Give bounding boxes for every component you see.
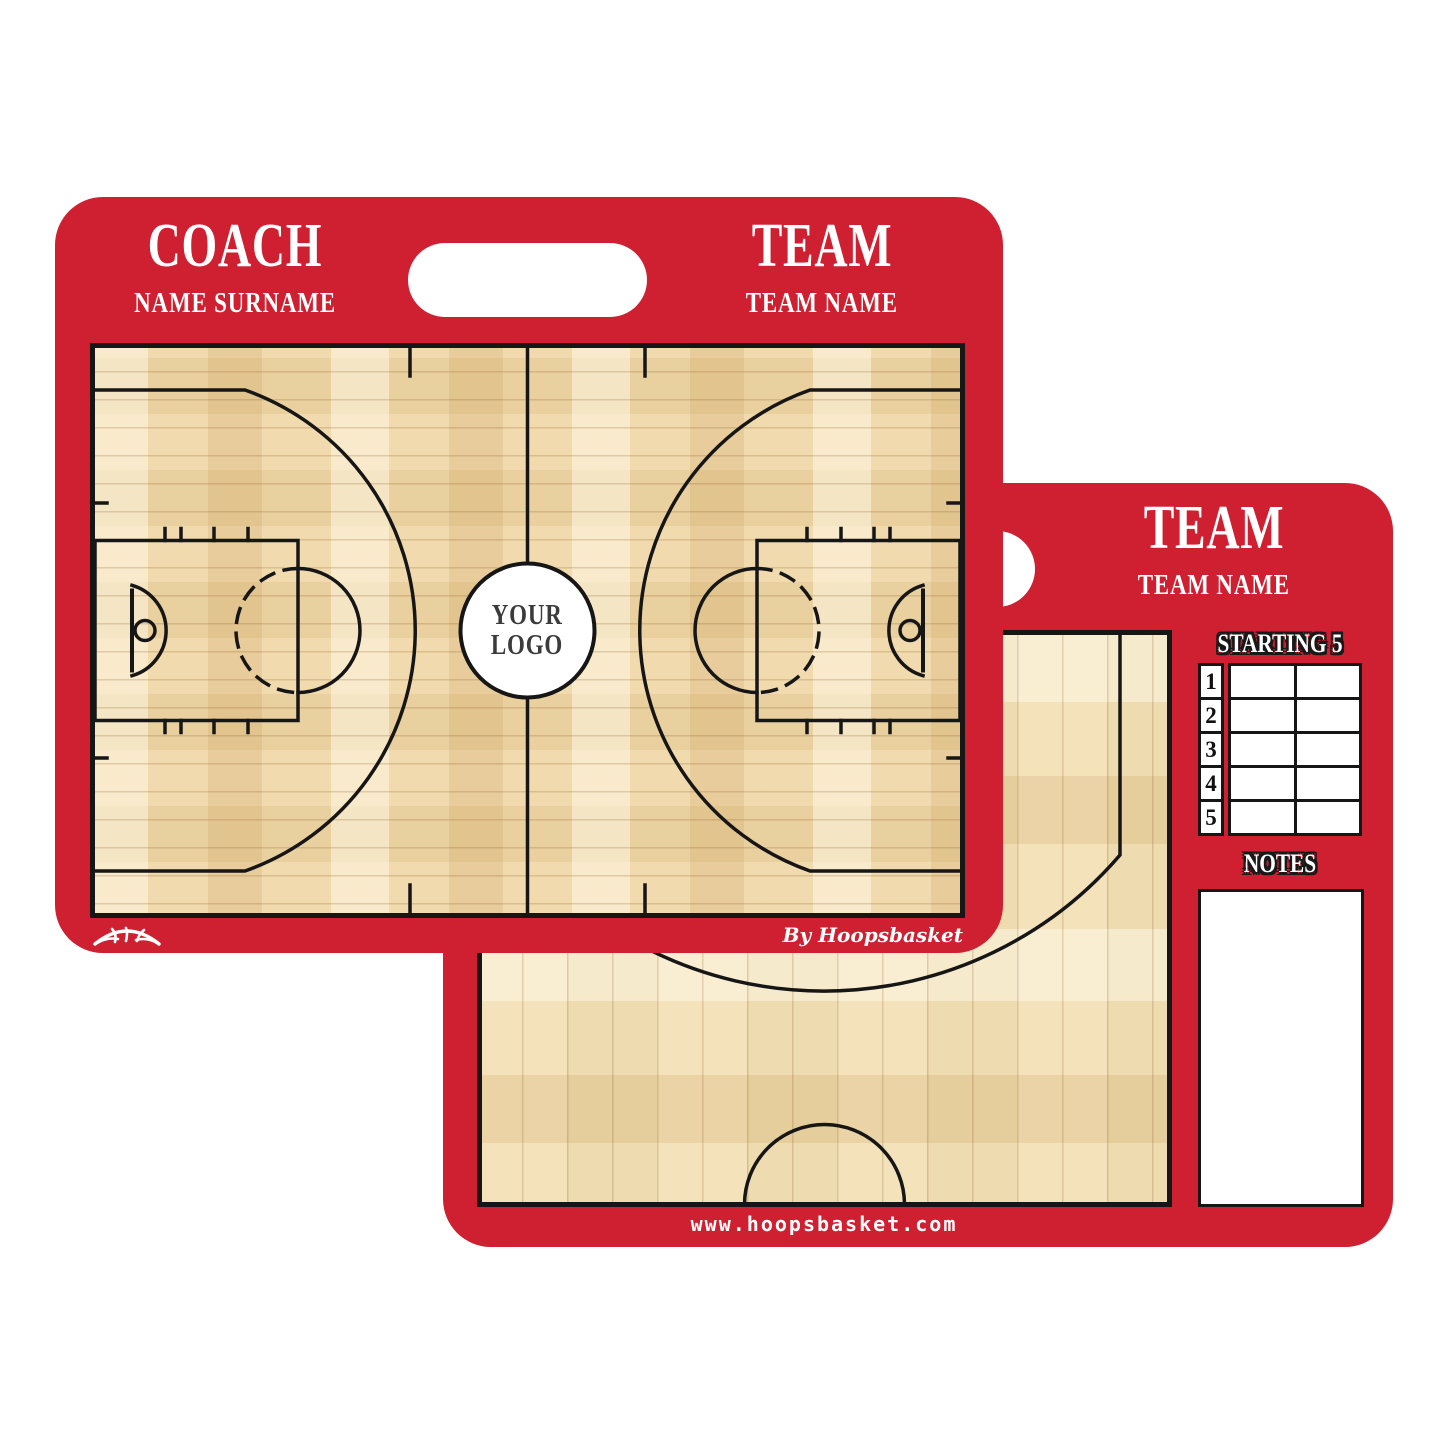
right-half-court-markings — [640, 390, 960, 871]
player-cell — [1231, 768, 1294, 799]
website-url: www.hoopsbasket.com — [691, 1212, 958, 1236]
front-team-name: TEAM NAME — [612, 288, 1032, 320]
player-cell — [1297, 700, 1360, 731]
front-coaching-board: COACH NAME SURNAME TEAM TEAM NAME — [55, 197, 1003, 953]
back-team-name: TEAM NAME — [1004, 570, 1424, 602]
your-logo-placeholder: YOUR LOGO — [483, 601, 571, 661]
row-number: 4 — [1201, 768, 1221, 799]
restricted-area-arc — [132, 585, 166, 675]
starting-five-title: STARTING 5 — [1204, 629, 1356, 659]
free-throw-circle-solid — [298, 569, 360, 693]
starting-five-number-column: 1 2 3 4 5 — [1198, 663, 1224, 836]
player-cell — [1297, 666, 1360, 697]
starting-five-table: 1 2 3 4 5 — [1198, 663, 1362, 836]
brand-credit: By Hoopsbasket — [783, 923, 963, 947]
back-board-title-block: TEAM TEAM NAME — [1004, 491, 1424, 602]
front-team-label: TEAM — [612, 209, 1032, 283]
player-cell — [1231, 700, 1294, 731]
row-number: 2 — [1201, 700, 1221, 731]
player-cell — [1231, 666, 1294, 697]
key-paint-area — [95, 541, 298, 721]
row-number: 1 — [1201, 666, 1221, 697]
player-cell — [1297, 802, 1360, 833]
back-team-label: TEAM — [1004, 491, 1424, 565]
player-cell — [1231, 734, 1294, 765]
coach-title-block: COACH NAME SURNAME — [25, 209, 445, 320]
basketball-swoosh-icon — [91, 925, 163, 949]
back-center-half-circle — [745, 1125, 905, 1205]
starting-five-cells — [1228, 663, 1362, 836]
row-number: 5 — [1201, 802, 1221, 833]
free-throw-circle-dashed — [236, 569, 298, 693]
player-cell — [1297, 768, 1360, 799]
three-point-line — [95, 390, 415, 871]
hoop-circle — [135, 621, 155, 641]
left-half-court-markings — [95, 390, 415, 871]
player-cell — [1297, 734, 1360, 765]
row-number: 3 — [1201, 734, 1221, 765]
coach-name: NAME SURNAME — [25, 288, 445, 320]
coach-label: COACH — [25, 209, 445, 283]
player-cell — [1231, 802, 1294, 833]
notes-writing-area — [1198, 889, 1364, 1207]
notes-title: NOTES — [1236, 849, 1324, 879]
lane-hash-marks — [165, 529, 248, 733]
team-title-block: TEAM TEAM NAME — [612, 209, 1032, 320]
